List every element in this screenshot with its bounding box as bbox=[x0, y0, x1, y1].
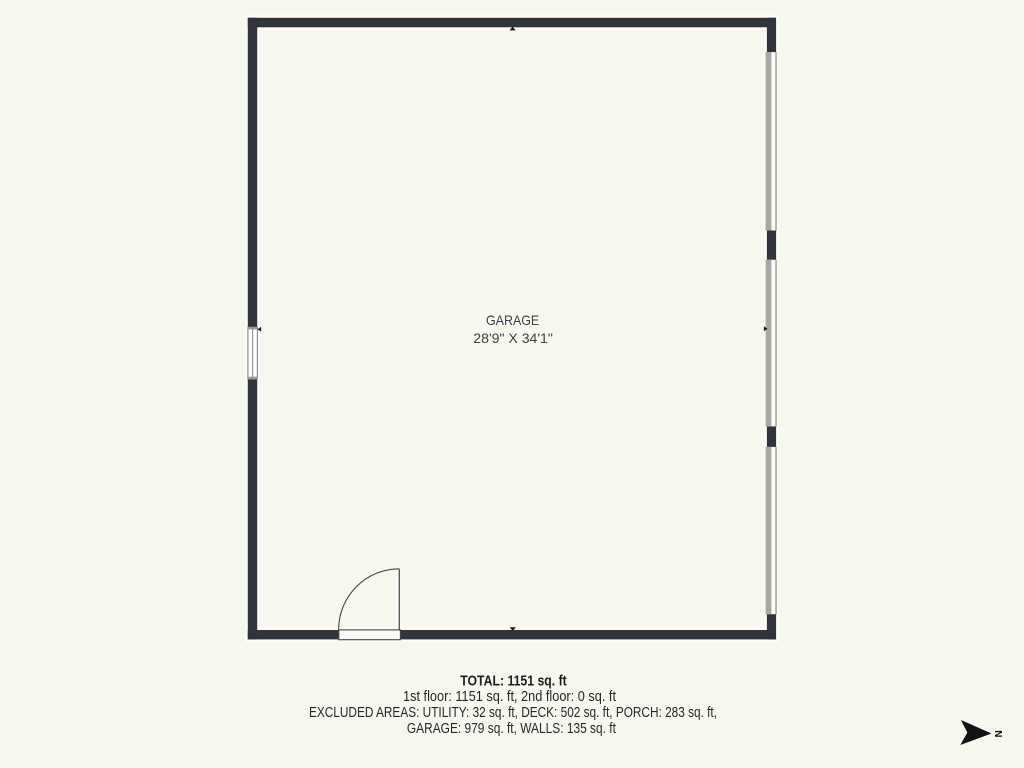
svg-text:GARAGE: GARAGE bbox=[486, 312, 539, 328]
svg-text:EXCLUDED AREAS: UTILITY: 32 sq: EXCLUDED AREAS: UTILITY: 32 sq. ft, DECK… bbox=[309, 705, 717, 721]
svg-text:TOTAL: 1151 sq. ft: TOTAL: 1151 sq. ft bbox=[460, 672, 567, 689]
svg-text:N: N bbox=[992, 730, 1003, 737]
svg-text:1st floor: 1151 sq. ft, 2nd fl: 1st floor: 1151 sq. ft, 2nd floor: 0 sq.… bbox=[403, 689, 616, 705]
svg-text:28'9" X 34'1": 28'9" X 34'1" bbox=[473, 331, 553, 347]
svg-text:GARAGE: 979 sq. ft, WALLS: 135: GARAGE: 979 sq. ft, WALLS: 135 sq. ft bbox=[407, 721, 616, 737]
